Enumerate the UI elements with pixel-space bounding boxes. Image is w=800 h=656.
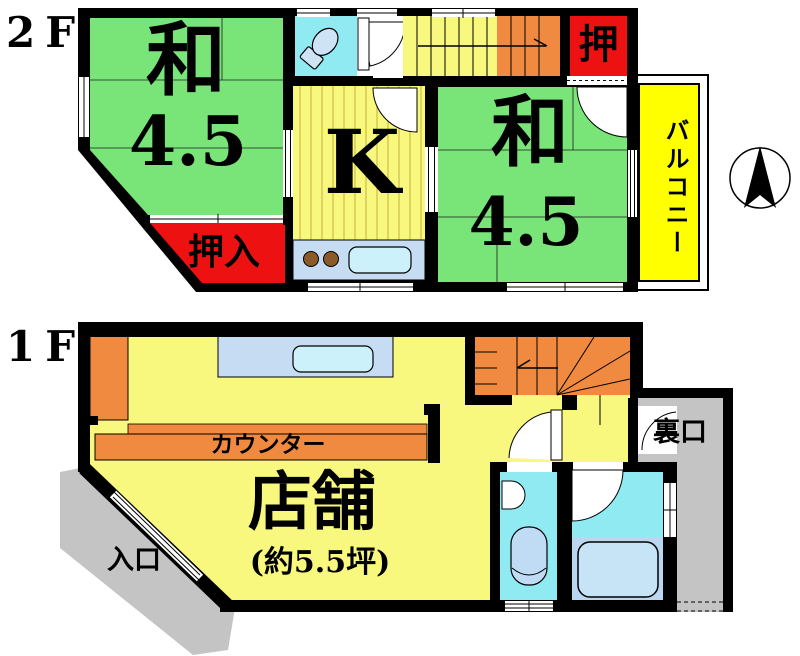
sink-icon	[349, 247, 411, 273]
floor-1f-drawing	[60, 322, 733, 655]
balcony-area	[633, 75, 708, 290]
shop-back-counter	[218, 335, 393, 377]
stove-burners-icon	[304, 252, 319, 267]
bathtub-icon	[578, 542, 658, 597]
fusuma-door-kitchen	[283, 130, 293, 197]
sink-icon	[293, 346, 373, 372]
shop-shelf-left	[90, 335, 128, 420]
toilet-door-2f	[357, 16, 405, 78]
floor-2f-drawing	[78, 8, 708, 292]
kitchen-room	[293, 86, 425, 280]
kitchen-counter	[293, 240, 425, 280]
stairs-2f	[403, 16, 560, 76]
fusuma-door	[150, 214, 285, 224]
floor-plan-drawing	[0, 0, 800, 656]
closet-opening	[567, 76, 627, 85]
compass-icon	[730, 146, 790, 208]
fusuma-door-right	[425, 147, 438, 212]
stove-burners-icon	[324, 252, 339, 267]
back-door	[638, 406, 677, 454]
floor-plan: 2F 和 4.5 K 和 4.5 押 押入 バルコニー 1F 店舗 (約5.5坪…	[0, 0, 800, 656]
closet-oshi	[570, 16, 627, 76]
